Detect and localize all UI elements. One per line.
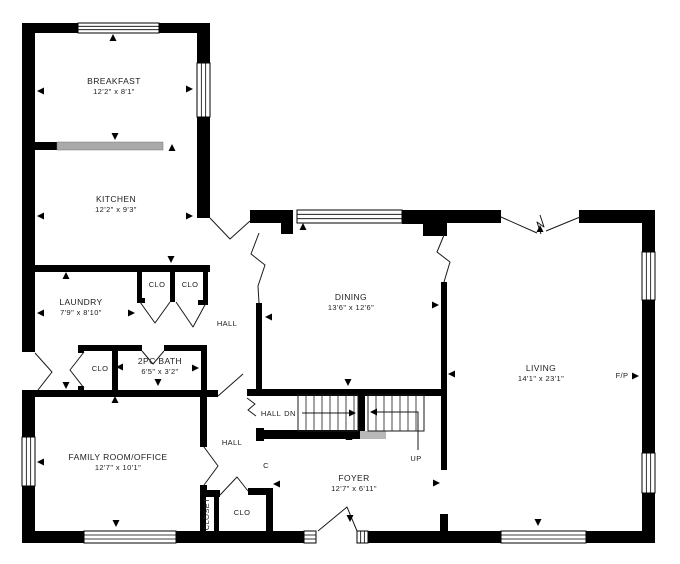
dimension-arrow-right xyxy=(128,310,135,317)
room-label-kitchen: KITCHEN xyxy=(96,194,136,204)
room-dims-living: 14'1" x 23'1" xyxy=(518,374,564,383)
window xyxy=(197,63,210,117)
wall-segment xyxy=(214,497,219,531)
dimension-arrow-up xyxy=(110,34,117,41)
wall-segment xyxy=(137,298,145,303)
wall-segment xyxy=(250,210,293,223)
window xyxy=(297,210,402,223)
wall-segment xyxy=(256,303,262,395)
room-label-breakfast: BREAKFAST xyxy=(87,76,141,86)
dimension-arrow-up xyxy=(169,144,176,151)
dining-east-opening xyxy=(437,235,450,282)
label-clo-hall-left: CLO xyxy=(149,280,166,289)
room-label-family-room: FAMILY ROOM/OFFICE xyxy=(69,452,168,462)
room-label-living: LIVING xyxy=(526,363,556,373)
dimension-arrow-down xyxy=(535,519,542,526)
room-label-dining: DINING xyxy=(335,292,367,302)
room-dims-kitchen: 12'2" x 9'3" xyxy=(95,205,137,214)
wall-segment xyxy=(368,531,501,543)
wall-segment xyxy=(440,514,448,531)
wall-segment xyxy=(78,345,84,353)
label-closet-vertical: CLOSET xyxy=(202,498,211,530)
window xyxy=(78,23,159,33)
wall-segment xyxy=(201,345,207,397)
wall-segment xyxy=(22,23,35,352)
wall-segment xyxy=(197,117,210,218)
dimension-arrow-left xyxy=(370,409,377,416)
label-hall-stair: HALL xyxy=(261,409,281,418)
dimension-arrow-down xyxy=(155,379,162,386)
wall-segment xyxy=(198,300,208,305)
wall-segment xyxy=(642,300,655,453)
wall-segment xyxy=(443,210,501,223)
wall-segment xyxy=(78,345,142,351)
dimension-arrow-right xyxy=(192,365,199,372)
living-top-opening-left xyxy=(501,217,537,233)
wall-segment xyxy=(200,490,220,497)
label-closet-c: C xyxy=(263,461,269,470)
counter-wall-stub xyxy=(35,142,57,150)
label-stairs-up: UP xyxy=(410,454,421,463)
room-dims-laundry: 7'9" x 8'10" xyxy=(60,308,102,317)
dimension-arrow-down xyxy=(345,379,352,386)
dimension-arrow-left xyxy=(448,371,455,378)
window xyxy=(304,531,316,543)
foyer-clo-door xyxy=(220,477,248,495)
floor-plan-canvas: BREAKFAST12'2" x 8'1"KITCHEN12'2" x 9'3"… xyxy=(0,0,680,564)
family-hall-door xyxy=(204,447,218,485)
room-dims-bath: 6'5" x 3'2" xyxy=(141,367,178,376)
label-fireplace: F/P xyxy=(616,371,629,380)
room-label-foyer: FOYER xyxy=(338,473,369,483)
dimension-arrow-down xyxy=(168,256,175,263)
wall-segment xyxy=(22,531,84,543)
label-hall-upper: HALL xyxy=(217,319,237,328)
wall-segment xyxy=(164,345,207,351)
dimension-arrow-right xyxy=(349,410,356,417)
hall-stair-door-leaf xyxy=(218,374,243,396)
wall-segment xyxy=(197,23,210,63)
hall-stair-opening xyxy=(247,398,256,416)
wall-segment xyxy=(579,210,655,223)
dimension-arrow-right xyxy=(433,480,440,487)
dimension-arrow-up xyxy=(112,396,119,403)
side-entry-door xyxy=(35,353,52,390)
wall-segment xyxy=(402,210,447,224)
window xyxy=(642,252,655,300)
room-label-laundry: LAUNDRY xyxy=(59,297,102,307)
clo-right-door xyxy=(176,302,206,327)
kitchen-hall-door xyxy=(210,218,250,239)
room-dims-dining: 13'6" x 12'6" xyxy=(328,303,374,312)
window xyxy=(642,453,655,493)
floor-plan: BREAKFAST12'2" x 8'1"KITCHEN12'2" x 9'3"… xyxy=(0,0,680,564)
dimension-arrow-down xyxy=(112,133,119,140)
window xyxy=(357,531,368,543)
window xyxy=(501,531,586,543)
label-hall-lower: HALL xyxy=(222,438,242,447)
wall-segment xyxy=(642,493,655,543)
wall-segment xyxy=(137,272,142,302)
label-clo-foyer: CLO xyxy=(234,508,251,517)
label-clo-bath: CLO xyxy=(92,364,109,373)
bath-clo-door xyxy=(70,352,84,388)
window xyxy=(84,531,176,543)
dimension-arrow-right xyxy=(432,302,439,309)
dimension-arrow-up xyxy=(300,223,307,230)
room-dims-foyer: 12'7" x 6'11" xyxy=(331,484,377,493)
living-top-opening-right xyxy=(546,217,580,231)
clo-left-door xyxy=(140,302,170,323)
label-clo-hall-right: CLO xyxy=(182,280,199,289)
wall-segment xyxy=(203,272,208,302)
wall-segment xyxy=(281,223,293,234)
dimension-arrow-left xyxy=(273,481,280,488)
wall-segment xyxy=(33,265,210,272)
dimension-arrow-left xyxy=(37,459,44,466)
dimension-arrow-left xyxy=(265,314,272,321)
stair-landing xyxy=(360,431,386,439)
wall-segment xyxy=(22,390,218,397)
wall-segment xyxy=(423,224,447,236)
wall-segment xyxy=(176,531,304,543)
dimension-arrow-right xyxy=(186,86,193,93)
wall-segment xyxy=(200,397,207,447)
kitchen-counter xyxy=(57,142,163,150)
wall-segment xyxy=(112,345,118,397)
dimension-arrow-down xyxy=(113,520,120,527)
wall-segment xyxy=(266,488,273,531)
label-stairs-down: DN xyxy=(284,409,296,418)
wall-segment xyxy=(358,395,365,433)
dimension-arrow-right xyxy=(186,213,193,220)
wall-segment xyxy=(170,272,175,302)
dimension-arrow-left xyxy=(37,88,44,95)
dimension-arrow-up xyxy=(63,272,70,279)
room-label-bath: 2PC BATH xyxy=(138,356,182,366)
dimension-arrow-right xyxy=(632,373,639,380)
dimension-arrow-left xyxy=(37,213,44,220)
dining-west-opening xyxy=(251,233,265,303)
dimension-arrow-left xyxy=(37,310,44,317)
dimension-arrow-down xyxy=(63,382,70,389)
wall-segment xyxy=(441,282,447,470)
wall-segment xyxy=(22,390,35,437)
room-dims-family-room: 12'7" x 10'1" xyxy=(95,463,141,472)
window xyxy=(22,437,35,486)
room-dims-breakfast: 12'2" x 8'1" xyxy=(93,87,135,96)
